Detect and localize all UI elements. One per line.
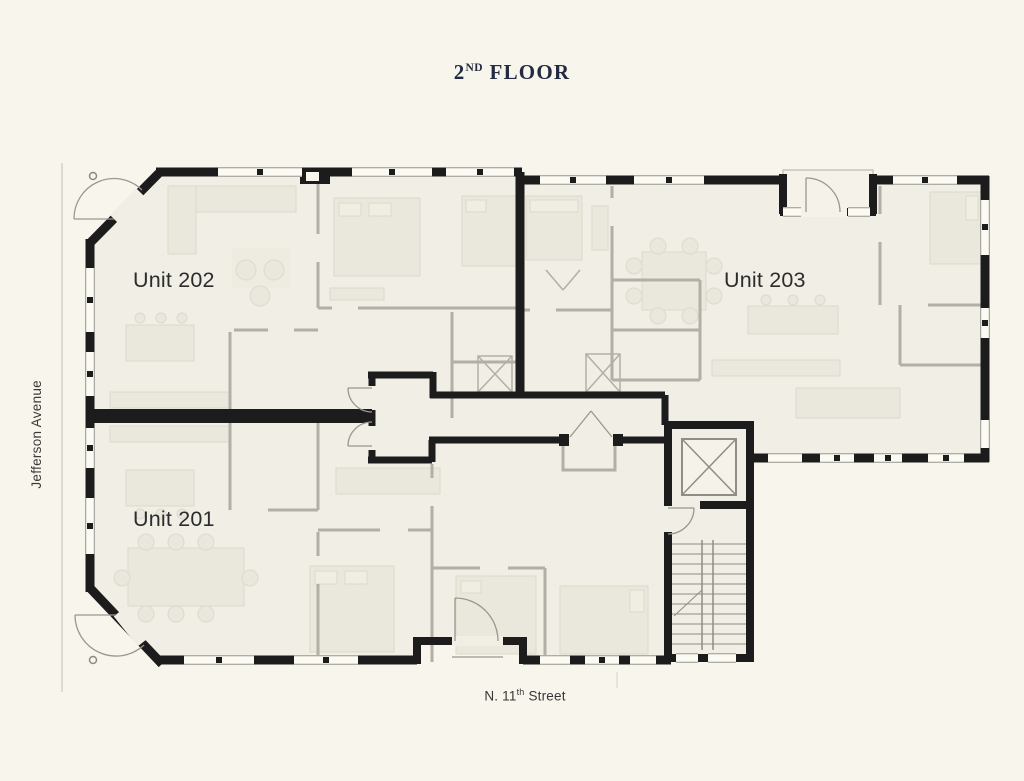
double-door-jamb: [559, 434, 569, 446]
chair: [682, 308, 698, 324]
pillow: [461, 581, 481, 593]
kitchen-island: [126, 325, 194, 361]
chair: [236, 260, 256, 280]
stool: [761, 295, 771, 305]
stool: [177, 313, 187, 323]
floor-plan-drawing: [0, 0, 1024, 781]
kitchen-counter: [110, 426, 230, 442]
unit-label-201: Unit 201: [133, 507, 215, 532]
stool: [156, 313, 166, 323]
wall-jog-inset: [306, 172, 319, 181]
pillow: [339, 203, 361, 216]
chair: [198, 606, 214, 622]
stool: [135, 313, 145, 323]
pillow: [966, 196, 978, 220]
stool: [788, 295, 798, 305]
kitchen-counter: [110, 392, 230, 408]
desk: [592, 206, 608, 250]
chair: [250, 286, 270, 306]
chair: [706, 258, 722, 274]
chair: [650, 238, 666, 254]
chair: [682, 238, 698, 254]
unit-divider-201-202: [90, 409, 372, 423]
sofa: [336, 468, 440, 494]
chair: [242, 570, 258, 586]
kitchen-island: [748, 306, 838, 334]
dresser: [330, 288, 384, 300]
chair: [626, 258, 642, 274]
pillow: [369, 203, 391, 216]
title-ordinal: ND: [465, 62, 483, 74]
pillow: [530, 200, 578, 212]
floor-plan-page: 2ND FLOOR Unit 202 Unit 203 Unit 201 Jef…: [0, 0, 1024, 781]
sofa: [168, 186, 196, 254]
chair: [264, 260, 284, 280]
chair: [138, 606, 154, 622]
chair: [168, 534, 184, 550]
dining-table: [128, 548, 244, 606]
street-label-jefferson-avenue: Jefferson Avenue: [29, 380, 44, 489]
unit-label-202: Unit 202: [133, 268, 215, 293]
chair: [168, 606, 184, 622]
chair: [138, 534, 154, 550]
kitchen-counter: [712, 360, 840, 376]
survey-marker-icon: [90, 657, 97, 664]
pillow: [630, 590, 644, 612]
pillow: [466, 200, 486, 212]
balcony-floor: [783, 170, 873, 212]
page-title: 2ND FLOOR: [0, 60, 1024, 85]
chair: [706, 288, 722, 304]
survey-marker-icon: [90, 173, 97, 180]
chair: [114, 570, 130, 586]
kitchen-island: [126, 470, 194, 506]
street-label-n-11th-street: N. 11th Street: [0, 687, 1024, 704]
pillow: [345, 571, 367, 584]
chair: [626, 288, 642, 304]
chair: [650, 308, 666, 324]
elevator: [682, 439, 736, 495]
sofa: [796, 388, 900, 418]
unit-label-203: Unit 203: [724, 268, 806, 293]
chair: [198, 534, 214, 550]
pillow: [315, 571, 337, 584]
stool: [815, 295, 825, 305]
double-door-jamb: [613, 434, 623, 446]
